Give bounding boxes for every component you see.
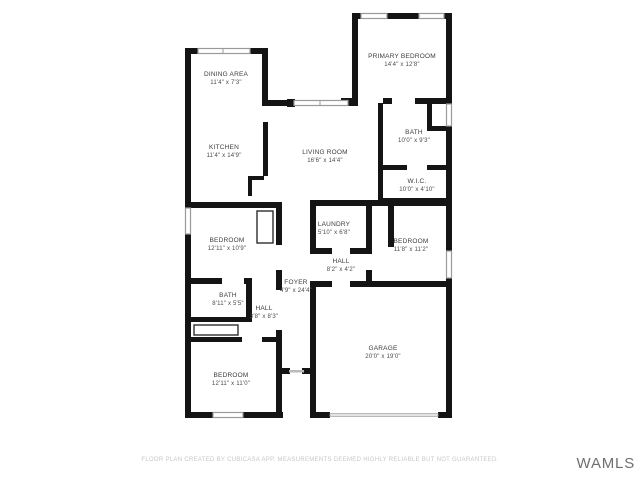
garage-door <box>330 414 438 417</box>
room-label-foyer: FOYER4'9" x 24'4" <box>280 279 312 295</box>
room-label-hall-center: HALL8'2" x 4'2" <box>327 258 355 274</box>
room-label-bedroom-bottom: BEDROOM12'11" x 11'0" <box>212 372 250 388</box>
closet-outline <box>257 211 273 243</box>
room-label-living-room: LIVING ROOM16'6" x 14'4" <box>302 149 348 165</box>
closet-outline <box>194 325 238 335</box>
room-label-primary-bedroom: PRIMARY BEDROOM14'4" x 12'8" <box>368 53 436 69</box>
room-label-laundry: LAUNDRY5'10" x 6'8" <box>318 221 350 237</box>
floor-plan-drawing <box>0 0 640 480</box>
room-label-bath-hall: BATH8'11" x 5'5" <box>212 292 244 308</box>
room-label-wic: W.I.C.10'0" x 4'10" <box>399 178 435 194</box>
room-label-bedroom-left: BEDROOM12'11" x 10'9" <box>208 237 247 253</box>
front-door <box>289 370 304 373</box>
disclaimer-text: FLOOR PLAN CREATED BY CUBICASA APP. MEAS… <box>0 457 640 463</box>
floor-plan-canvas: DINING AREA11'4" x 7'3" KITCHEN11'4" x 1… <box>0 0 640 480</box>
room-label-bedroom-right: BEDROOM11'8" x 11'2" <box>394 238 429 254</box>
room-label-kitchen: KITCHEN11'4" x 14'9" <box>206 144 241 160</box>
room-label-garage: GARAGE20'0" x 19'0" <box>365 345 401 361</box>
room-label-dining-area: DINING AREA11'4" x 7'3" <box>204 71 248 87</box>
wamls-watermark: WAMLS <box>577 455 635 472</box>
room-label-bath-primary: BATH10'0" x 9'3" <box>398 129 430 145</box>
room-label-hall-left: HALL3'8" x 8'3" <box>250 305 278 321</box>
